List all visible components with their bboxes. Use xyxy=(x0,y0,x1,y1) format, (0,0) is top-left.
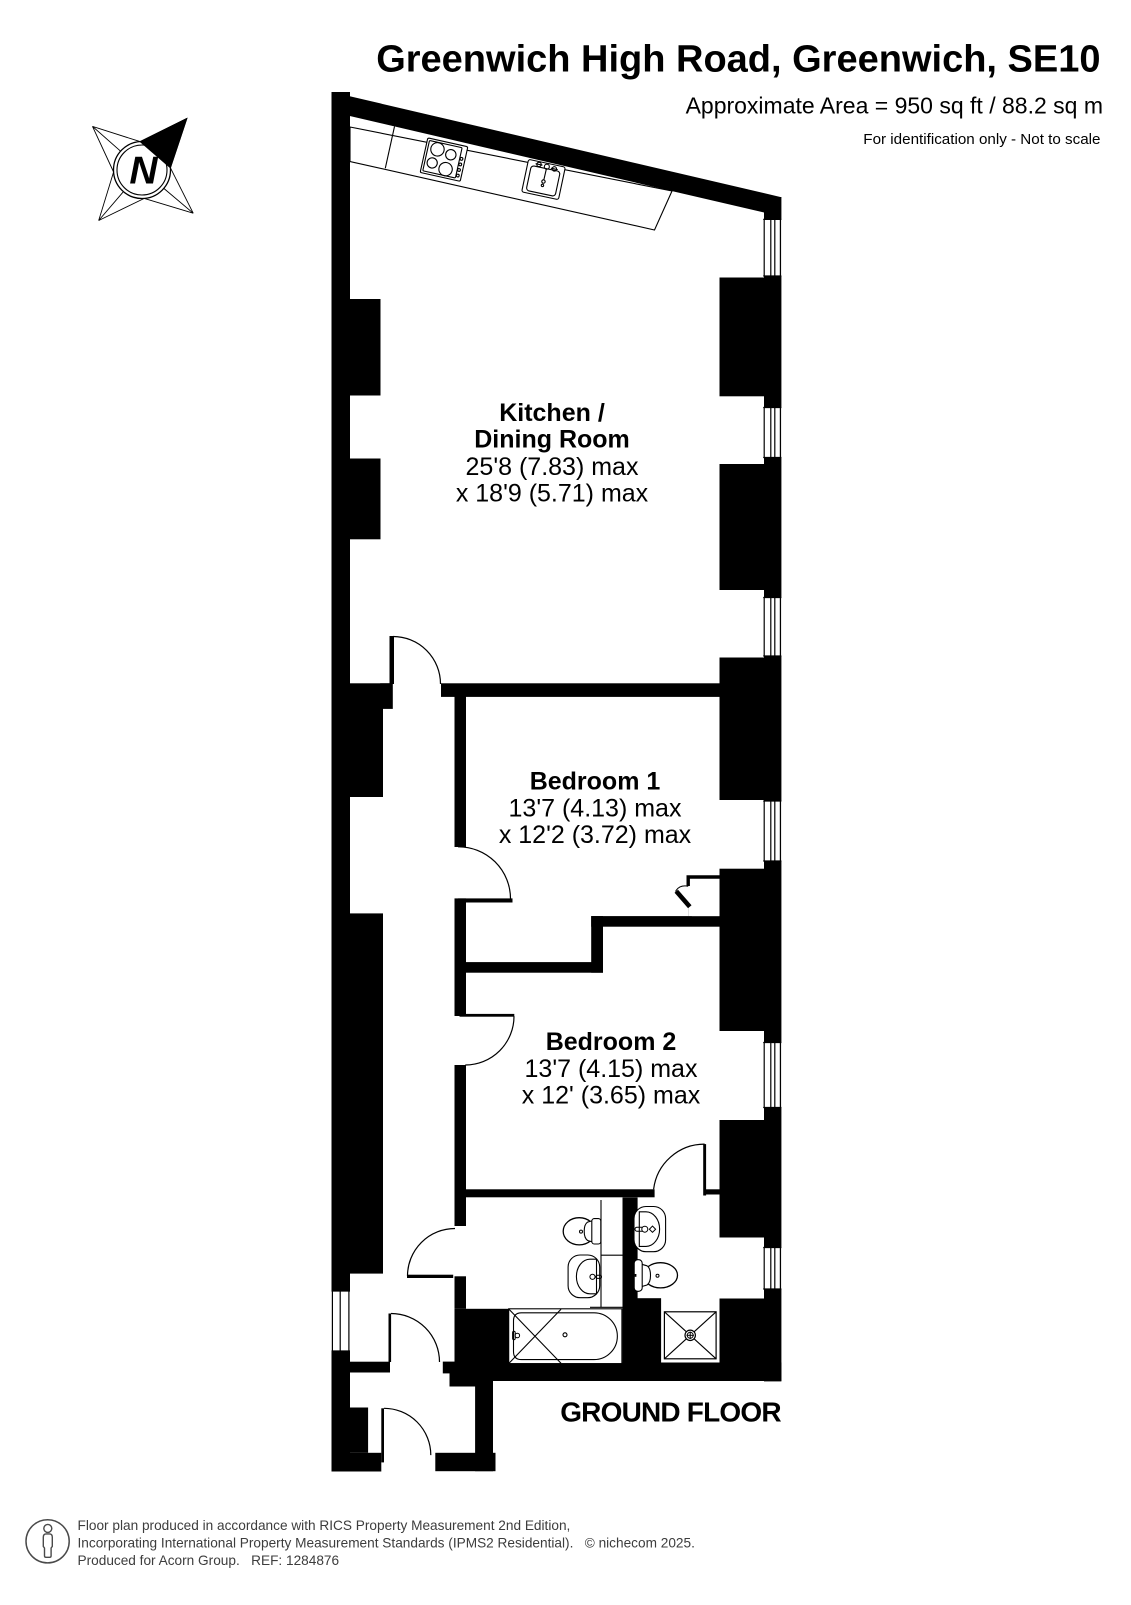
svg-text:N: N xyxy=(129,150,158,193)
svg-text:x 12' (3.65) max: x 12' (3.65) max xyxy=(522,1082,701,1110)
svg-text:13'7 (4.15) max: 13'7 (4.15) max xyxy=(525,1055,698,1083)
svg-text:Floor plan produced in accorda: Floor plan produced in accordance with R… xyxy=(78,1518,571,1533)
svg-text:Kitchen /: Kitchen / xyxy=(499,399,605,427)
svg-text:Incorporating International Pr: Incorporating International Property Mea… xyxy=(78,1536,695,1551)
svg-text:x 12'2 (3.72) max: x 12'2 (3.72) max xyxy=(499,821,692,849)
svg-text:13'7 (4.13) max: 13'7 (4.13) max xyxy=(509,794,682,822)
svg-text:Produced for Acorn Group. RE: Produced for Acorn Group. REF: 1284876 xyxy=(78,1553,340,1568)
svg-text:GROUND FLOOR: GROUND FLOOR xyxy=(560,1397,781,1428)
svg-text:Approximate Area = 950 sq ft /: Approximate Area = 950 sq ft / 88.2 sq m xyxy=(686,93,1103,119)
svg-text:Bedroom 2: Bedroom 2 xyxy=(546,1028,677,1056)
svg-text:25'8 (7.83) max: 25'8 (7.83) max xyxy=(466,453,639,481)
svg-text:For identification only - Not: For identification only - Not to scale xyxy=(863,131,1100,148)
svg-text:Dining Room: Dining Room xyxy=(474,426,630,454)
svg-text:Greenwich High Road, Greenwich: Greenwich High Road, Greenwich, SE10 xyxy=(376,39,1100,81)
svg-text:Bedroom 1: Bedroom 1 xyxy=(530,768,661,796)
svg-text:x 18'9 (5.71) max: x 18'9 (5.71) max xyxy=(456,480,649,508)
